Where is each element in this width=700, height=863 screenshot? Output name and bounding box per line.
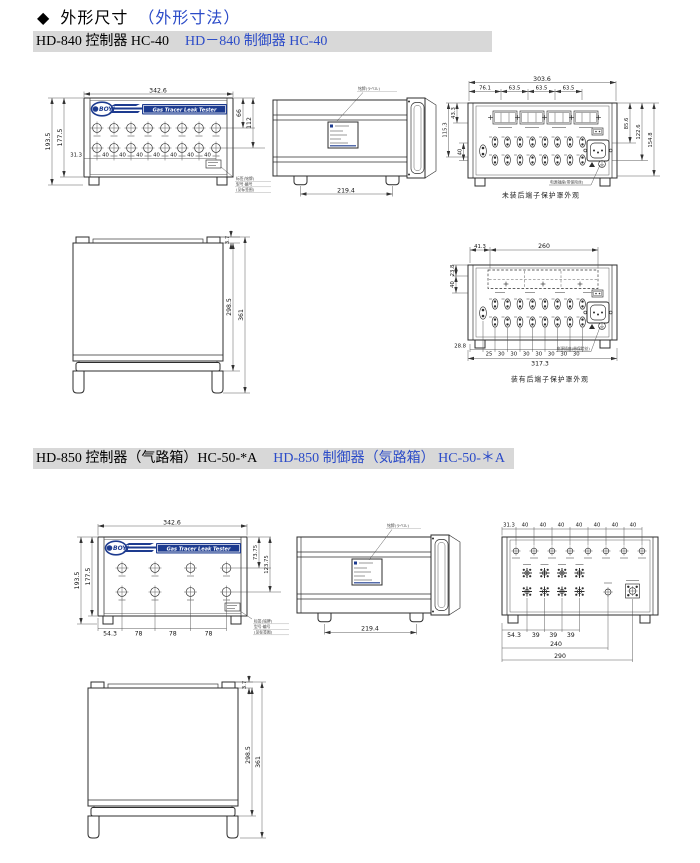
dim-pitch: 40 [136,153,143,159]
dim-pitch: 40 [102,153,109,159]
dim-pitch: 39 [567,632,575,639]
dim-pitch: 39 [549,632,557,639]
dim-pitch: 40 [187,153,194,159]
hd840-top-view: 3.7 298.5 361 [73,231,250,394]
label-note-line1: 标签(铭牌) [254,619,273,624]
hd840-front-view: 标签(铭牌) 型号·编号 (见标签图) 342.6 193.5 177.5 66… [45,88,271,193]
hd840-rear-caption: 未装后端子保护罩外观 [502,191,580,200]
dim-hd840-cover-t2: 260 [538,243,550,250]
label-note-line2: 型号·编号 [236,182,253,187]
hd850-rear-top-dims [502,527,642,546]
dim-hd840-rear-width: 303.6 [533,76,551,83]
dim-pitch: 40 [558,523,565,529]
dim-pitch: 40 [522,523,529,529]
dim-pitch: 40 [153,153,160,159]
dim-hd840-rear-r3: 154.8 [648,132,654,148]
dim-pitch: 39 [532,632,540,639]
inlet-fitting [626,584,640,598]
dim-hd850-top-inner: 298.5 [245,746,252,764]
hd850-front-view: 标签(铭牌) 型号·编号 (见标签图) 342.6 193.5 177.5 73… [74,520,289,638]
dim-hd840-top-outer: 361 [238,309,245,321]
dim-pitch: 30 [573,352,580,358]
dim-hd840-cover-total: 317.3 [531,361,549,368]
dim-pitch: 40 [576,523,583,529]
dim-pitch: 30 [523,352,530,358]
dim-pitch: 30 [498,352,505,358]
label-note-line1: 标签(铭牌) [236,176,255,181]
hd840-cover-caption: 装有后端子保护罩外观 [511,375,589,384]
dim-hd850-rear-power: 240 [550,641,562,648]
hd840-front-case [84,98,233,185]
hd840-top-case [73,237,223,393]
hd850-front-bottom-dims [98,598,227,631]
dim-hd840-cover-bl: 28.8 [454,344,466,350]
dim-pitch: 78 [169,631,177,638]
dim-pitch: 78 [135,631,143,638]
dim-hd850-rear-b1: 54.3 [507,632,521,639]
dim-hd840-side-depth: 219.4 [337,187,355,194]
power-note: 电源插座(带保险丝) [550,180,584,185]
dim-pitch: 30 [535,352,542,358]
hd850-top-view: 3.7 298.5 361 [88,676,266,839]
nameplate-note: 铭牌(ラベル) [387,523,409,528]
dim-hd840-rear-l1: 115.3 [443,122,449,137]
dim-pitch: 40 [204,153,211,159]
hd850-rear-bottom-dims [502,596,633,662]
dim-pitch: 40 [612,523,619,529]
hd840-rear-view: 303.6 76.1 63.5 63.5 63.5 85.6 122.6 154… [443,76,661,200]
dim-hd840-cover-l1: 23.8 [450,264,456,276]
dim-seg: 63.5 [509,86,521,92]
dim-hd840-rear-r2: 122.6 [636,124,642,140]
hd850-side-case [297,535,460,622]
dim-pitch: 30 [548,352,555,358]
hd840-side-view: 219.4 铭牌(ラベル) [273,86,436,197]
power-note: 电源插座(带保险丝) [557,346,591,351]
dim-hd850-front-h2: 177.5 [85,568,92,586]
dim-hd840-top-inner: 298.5 [226,298,233,316]
dim-pitch: 40 [594,523,601,529]
dim-pitch: 40 [540,523,547,529]
dim-hd850-rear-t1: 31.3 [503,523,515,529]
hd840-rear-cover-panel [468,265,617,348]
label-note-line2: 型号·编号 [254,624,271,629]
dim-hd840-front-width: 342.6 [149,88,167,95]
dim-hd840-front-h2: 177.5 [57,129,64,147]
dim-hd850-side-depth: 219.4 [361,626,379,633]
dim-pitch: 40 [170,153,177,159]
dim-hd850-rear-inlet: 290 [554,653,566,660]
dim-hd840-front-r2: 112 [246,117,253,129]
dim-hd840-cover-t1: 41.3 [474,244,486,250]
dimension-drawings: BOYI Gas Tracer Leak Tester 标签(铭牌) 型号·编号… [0,0,700,863]
dim-hd840-rear-l2: 43.3 [451,107,457,119]
cert-label [225,603,240,611]
dim-pitch: 40 [119,153,126,159]
dim-hd850-front-width: 342.6 [163,520,181,527]
hd840-side-case [273,98,436,185]
label-note-line3: (见标签图) [236,187,255,192]
dim-seg: 76.1 [479,86,491,92]
dim-hd850-front-offset: 54.3 [103,631,117,638]
power-port [603,587,613,597]
label-note-line3: (见标签图) [254,630,273,635]
dim-hd850-front-r1: 73.75 [253,545,259,560]
dim-hd840-front-h1: 193.5 [45,133,52,151]
dim-hd840-front-r1: 66 [236,109,243,117]
cert-label [206,160,221,168]
dim-pitch: 30 [560,352,567,358]
dim-seg: 63.5 [536,86,548,92]
hd850-top-case [88,682,238,838]
hd850-rear-view: 31.3 40 40 40 40 40 40 40 54.3 39 39 39 … [502,523,658,663]
dim-pitch: 78 [205,631,213,638]
dim-pitch: 30 [510,352,517,358]
dim-hd840-front-offset: 31.3 [70,153,82,159]
dim-pitch: 40 [630,523,637,529]
dim-hd840-rear-l3: 40 [458,148,464,155]
dim-hd840-cover-l2: 40 [450,281,456,288]
dim-hd850-front-h1: 193.5 [74,572,81,590]
dim-hd840-rear-r1: 85.6 [624,117,630,129]
dim-hd850-top-outer: 361 [255,756,262,768]
hd850-front-case [98,537,247,624]
hd840-rear-cover-view: 41.3 260 23.8 40 28.8 25 30 30 30 30 30 … [450,243,617,384]
dim-b1: 25 [486,352,493,358]
nameplate-note: 铭牌(ラベル) [358,86,380,91]
dim-seg: 63.5 [563,86,575,92]
dim-hd850-front-r2: 123.75 [264,555,270,574]
hd850-side-view: 219.4 铭牌(ラベル) [297,523,460,635]
